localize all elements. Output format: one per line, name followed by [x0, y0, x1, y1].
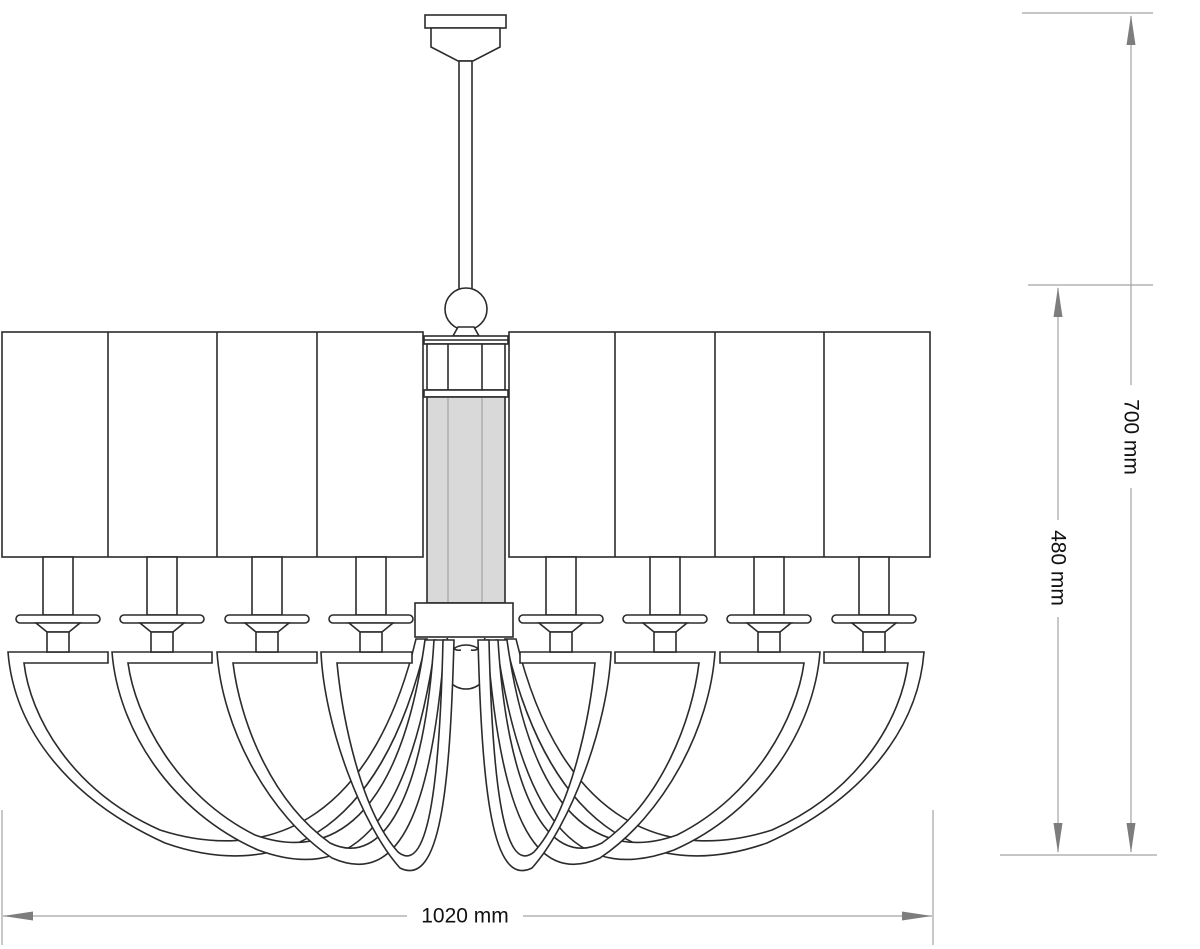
suspension-rod [459, 61, 472, 289]
arm-hub-block [415, 603, 513, 637]
arrow-left-icon [3, 912, 33, 921]
candle-tube [147, 557, 177, 615]
bobeche-disc [623, 615, 707, 623]
column-shaded-section [427, 397, 505, 603]
canopy-body [431, 28, 500, 61]
column-mid-band [424, 390, 508, 397]
arrow-right-icon [902, 912, 932, 921]
candle-cup [654, 632, 676, 652]
technical-drawing-canvas: 700 mm 480 mm 1020 mm [0, 0, 1200, 949]
candle-tube [252, 557, 282, 615]
ceiling-canopy [425, 15, 506, 61]
shade-panel [2, 332, 423, 557]
body-height-dimension-label: 480 mm [1047, 530, 1070, 606]
candle-cup [863, 632, 885, 652]
bobeche-taper [36, 623, 80, 632]
bobeche-taper [245, 623, 289, 632]
candle-tube [859, 557, 889, 615]
candle-cup [256, 632, 278, 652]
candle-tube [754, 557, 784, 615]
bobeche-disc [16, 615, 100, 623]
bobeche-disc [519, 615, 603, 623]
lampshade-row-left [2, 332, 423, 557]
chandelier-technical-drawing: 700 mm 480 mm 1020 mm [0, 0, 1200, 949]
candle-tube [43, 557, 73, 615]
bobeche-taper [140, 623, 184, 632]
arrow-down-icon [1054, 823, 1063, 853]
arrow-up-icon [1127, 15, 1136, 45]
dimension-overall-height: 700 mm [1120, 15, 1143, 853]
bobeche-disc [329, 615, 413, 623]
sphere-neck [453, 327, 479, 336]
overall-height-dimension-label: 700 mm [1120, 399, 1143, 475]
shade-panel [509, 332, 930, 557]
candle-cup [151, 632, 173, 652]
sphere-finial [445, 288, 487, 330]
candle-cup [758, 632, 780, 652]
candle-tube [356, 557, 386, 615]
dimension-body-height: 480 mm [1047, 287, 1070, 853]
central-column [424, 336, 508, 603]
bobeche-disc [225, 615, 309, 623]
dimension-width: 1020 mm [3, 905, 932, 928]
candle-tube [650, 557, 680, 615]
bobeche-disc [832, 615, 916, 623]
bobeche-taper [349, 623, 393, 632]
width-dimension-label: 1020 mm [421, 905, 509, 928]
lampshade-row-right [509, 332, 930, 557]
arrow-down-icon [1127, 823, 1136, 853]
candle-tube [546, 557, 576, 615]
canopy-plate [425, 15, 506, 28]
bobeche-taper [852, 623, 896, 632]
bobeche-disc [120, 615, 204, 623]
column-glass-section [427, 344, 505, 390]
arrow-up-icon [1054, 287, 1063, 317]
bobeche-taper [643, 623, 687, 632]
candle-cup [550, 632, 572, 652]
bobeche-disc [727, 615, 811, 623]
bobeche-taper [539, 623, 583, 632]
candle-cup [360, 632, 382, 652]
candle-cup [47, 632, 69, 652]
bobeche-taper [747, 623, 791, 632]
